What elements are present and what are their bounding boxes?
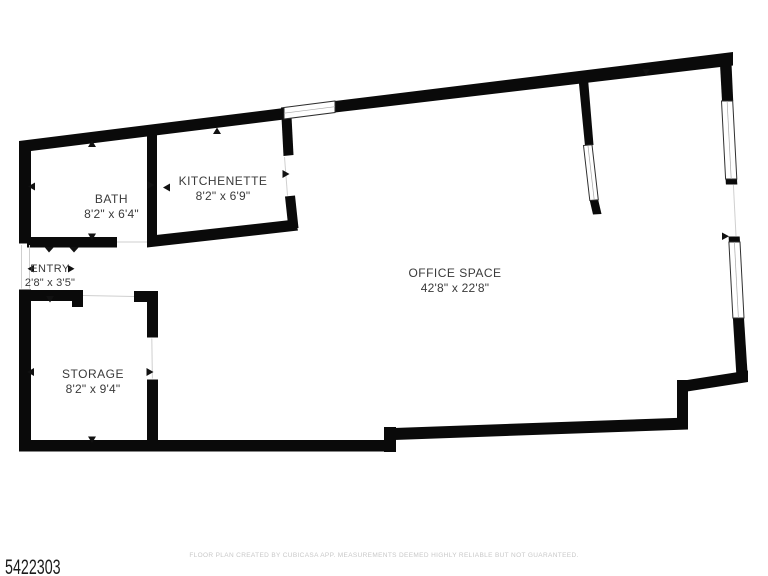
office-right-wall-opening [733, 185, 736, 236]
wall-top-right [335, 52, 733, 113]
wall-partition-upper [578, 73, 594, 147]
office-name: OFFICE SPACE [408, 266, 501, 281]
room-label-bath: BATH 8'2" x 6'4" [84, 192, 139, 222]
wall-notch-horizontal [684, 371, 748, 393]
entry-dimensions: 2'8" x 3'5" [25, 276, 75, 290]
wall-right-cap1 [726, 179, 738, 185]
listing-id: 5422303 [5, 556, 61, 576]
room-label-kitchenette: KITCHENETTE 8'2" x 6'9" [179, 174, 268, 204]
floor-plan-drawing [0, 0, 768, 576]
storage-name: STORAGE [62, 367, 124, 382]
bath-name: BATH [84, 192, 139, 207]
wall-storage-top-stub [72, 301, 83, 307]
entry-door-tick-1-icon [45, 247, 55, 253]
wall-left-bath [19, 141, 31, 244]
entry-name: ENTRY [25, 262, 75, 276]
wall-storage-east-lower [147, 380, 158, 452]
wall-storage-east-upper [147, 291, 158, 338]
windows [284, 101, 744, 318]
office-dimensions: 42'8" x 22'8" [408, 281, 501, 296]
wall-right-cap2 [729, 237, 740, 243]
walls [19, 52, 748, 452]
wall-right-lower [733, 318, 748, 374]
wall-left-storage [19, 290, 31, 452]
wall-bottom-storage [19, 440, 396, 452]
room-label-storage: STORAGE 8'2" x 9'4" [62, 367, 124, 397]
footer-disclaimer: FLOOR PLAN CREATED BY CUBICASA APP. MEAS… [0, 552, 768, 559]
direction-markers [27, 69, 729, 443]
wall-right-upper [720, 53, 734, 102]
floor-plan-page: BATH 8'2" x 6'4" KITCHENETTE 8'2" x 6'9"… [0, 0, 768, 576]
entry-door-tick-2-icon [69, 247, 79, 253]
office-right-arrow-icon [722, 233, 729, 241]
kitchenette-name: KITCHENETTE [179, 174, 268, 189]
room-label-entry: ENTRY 2'8" x 3'5" [25, 262, 75, 290]
wall-bottom-office [394, 418, 688, 441]
storage-dimensions: 8'2" x 9'4" [62, 382, 124, 397]
wall-partition-stub [590, 199, 602, 215]
wall-kitchenette-south [147, 220, 298, 248]
kitchenette-up-arrow-icon [213, 128, 221, 135]
bath-dimensions: 8'2" x 6'4" [84, 207, 139, 222]
door-openings [22, 157, 737, 379]
room-label-office: OFFICE SPACE 42'8" x 22'8" [408, 266, 501, 296]
storage-top-door-opening [83, 296, 134, 297]
wall-bath-bottom [27, 237, 117, 248]
kitchenette-dimensions: 8'2" x 6'9" [179, 189, 268, 204]
kitchenette-left-arrow-icon [163, 184, 170, 192]
